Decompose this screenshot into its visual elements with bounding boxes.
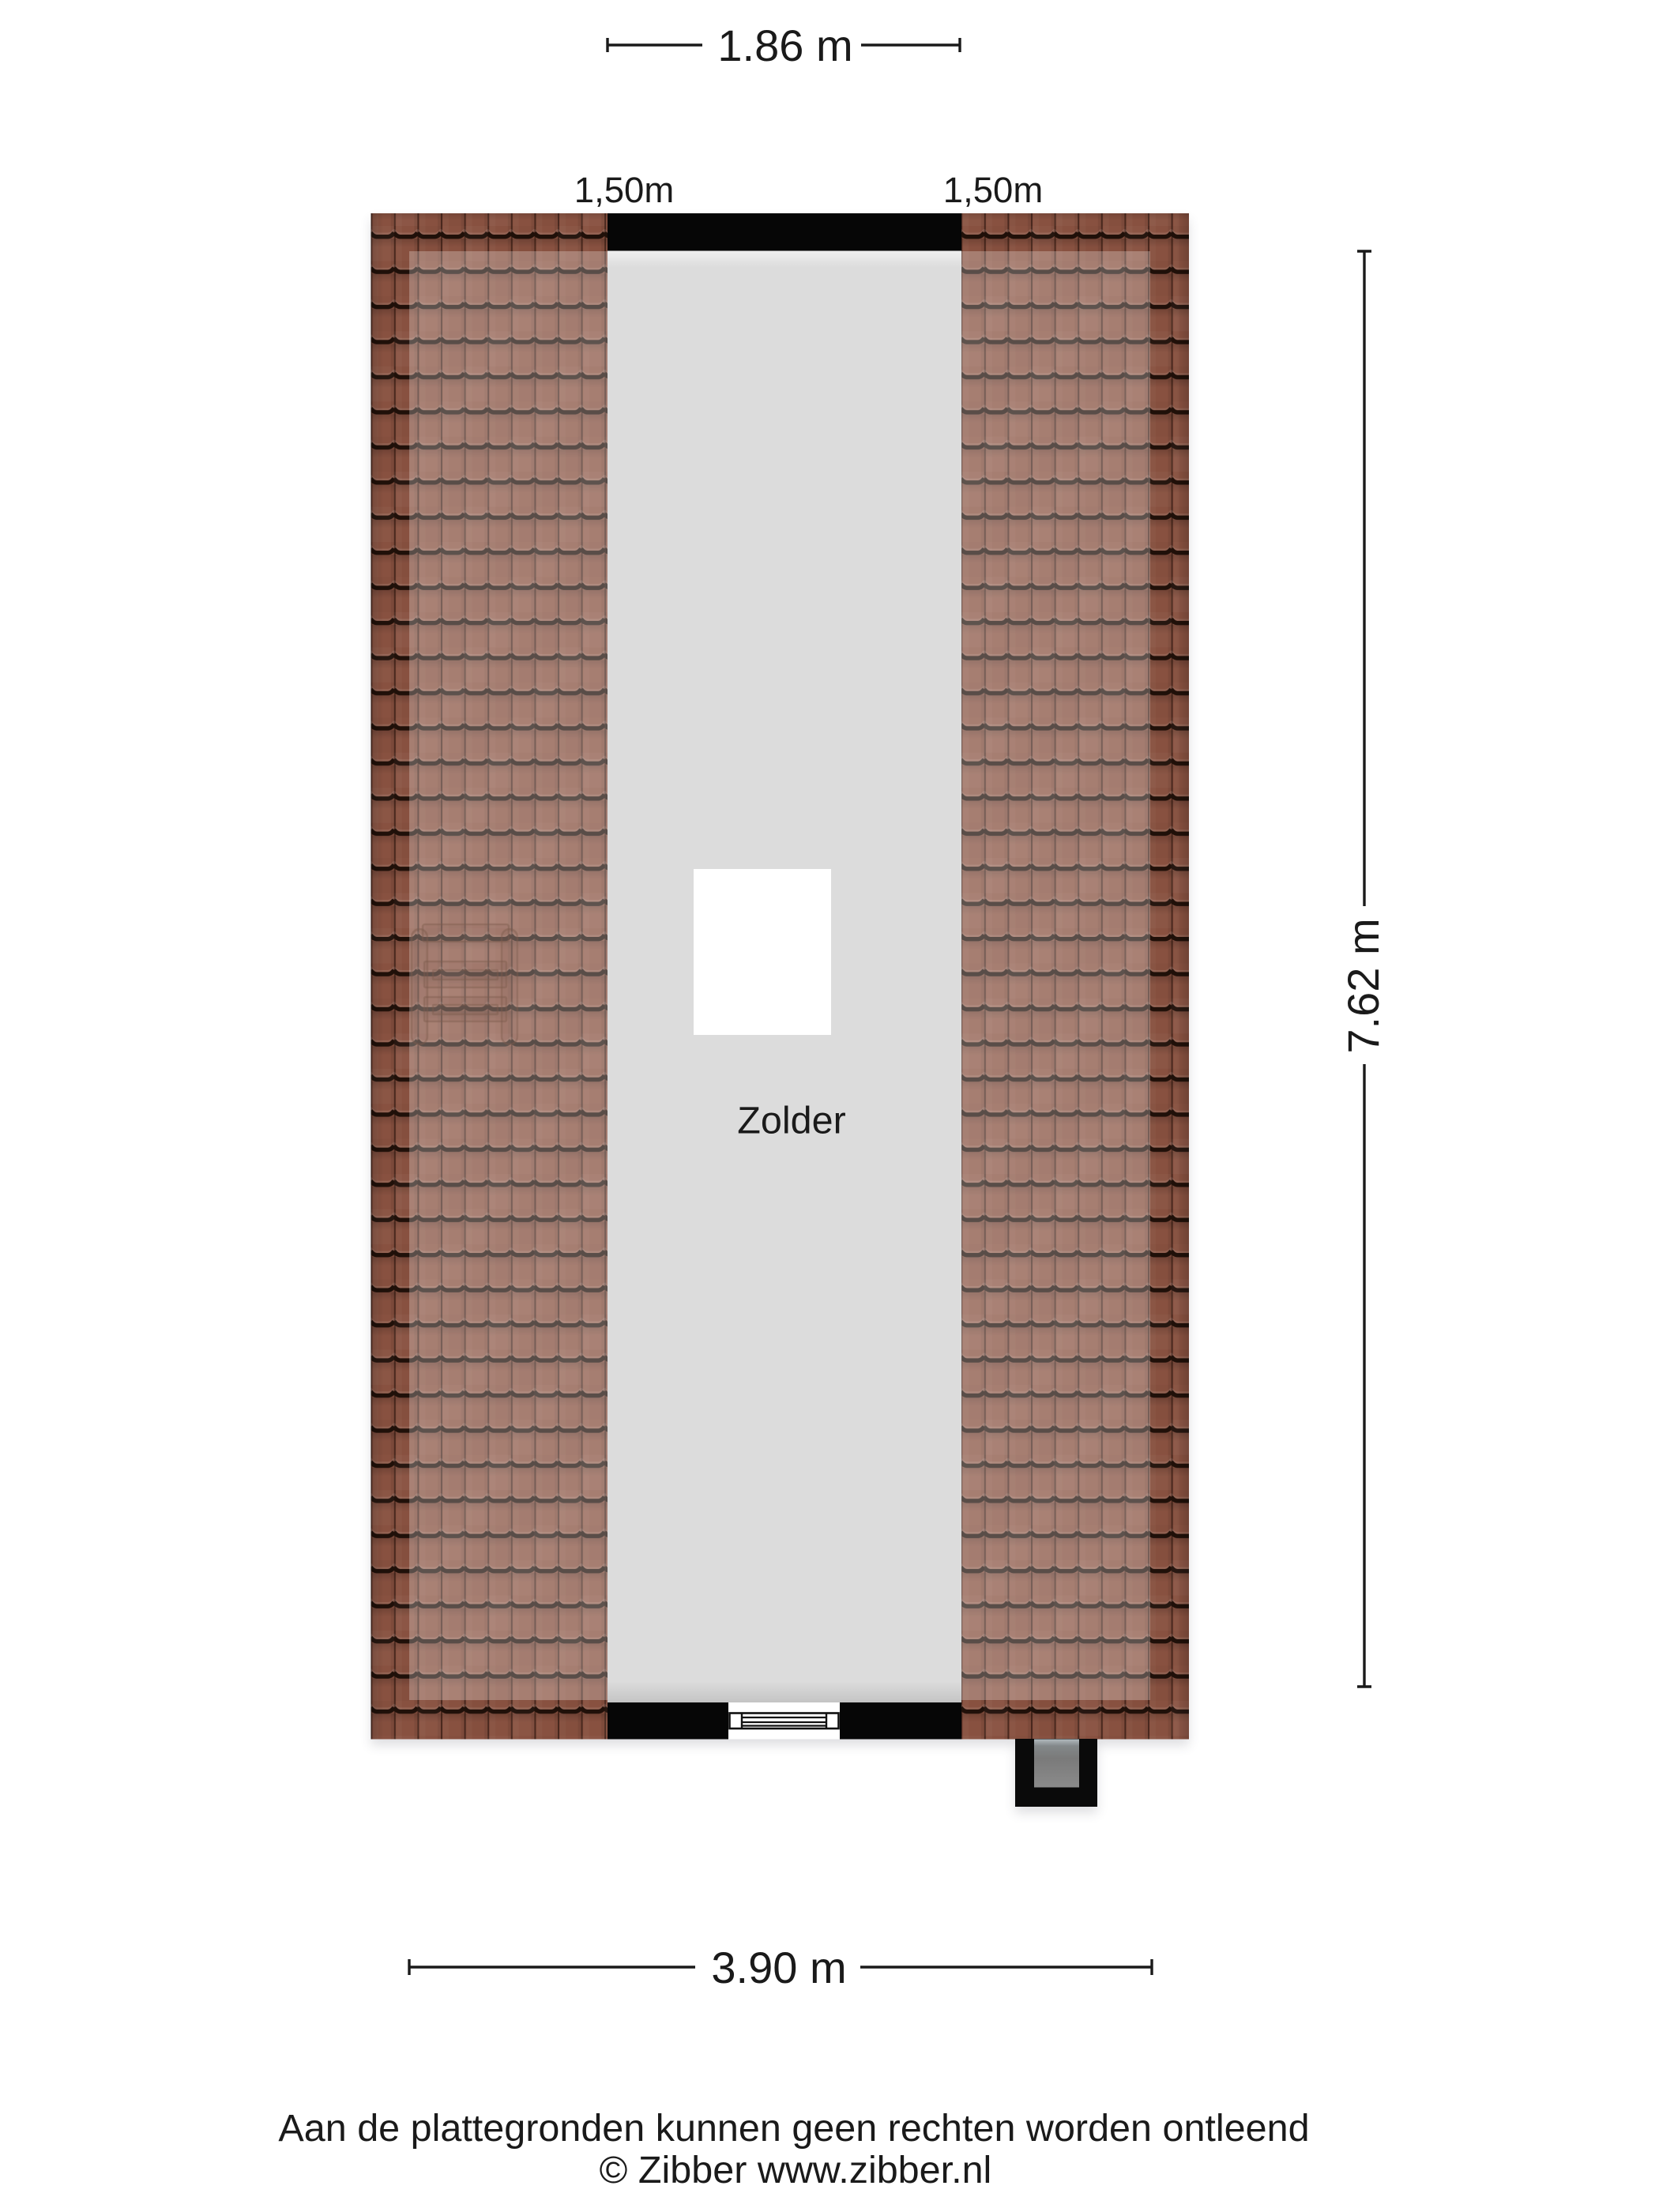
- svg-text:Zolder: Zolder: [737, 1100, 845, 1142]
- svg-text:1.86 m: 1.86 m: [717, 21, 852, 70]
- svg-text:3.90 m: 3.90 m: [711, 1943, 846, 1992]
- svg-text:7.62 m: 7.62 m: [1338, 918, 1388, 1053]
- svg-text:Aan de plattegronden kunnen ge: Aan de plattegronden kunnen geen rechten…: [278, 2107, 1309, 2150]
- svg-text:1,50m: 1,50m: [574, 170, 674, 210]
- svg-text:© Zibber www.zibber.nl: © Zibber www.zibber.nl: [600, 2149, 992, 2191]
- svg-text:1,50m: 1,50m: [943, 170, 1043, 210]
